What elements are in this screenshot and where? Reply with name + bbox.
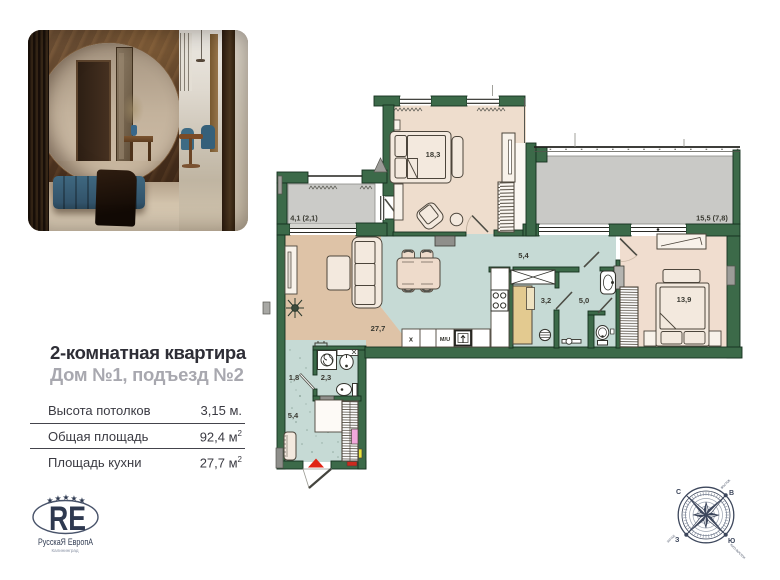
svg-text:3,2: 3,2	[541, 296, 552, 305]
svg-text:М/U: М/U	[440, 337, 450, 343]
svg-text:2,3: 2,3	[321, 373, 332, 382]
svg-text:18,3: 18,3	[426, 150, 441, 159]
svg-text:27,7: 27,7	[371, 324, 386, 333]
svg-text:1,8: 1,8	[289, 373, 300, 382]
svg-text:5,4: 5,4	[518, 251, 529, 260]
svg-text:13,9: 13,9	[677, 295, 692, 304]
svg-text:15,5 (7,8): 15,5 (7,8)	[696, 214, 728, 223]
svg-text:5,4: 5,4	[288, 411, 299, 420]
svg-text:5,0: 5,0	[579, 296, 590, 305]
svg-text:4,1 (2,1): 4,1 (2,1)	[290, 214, 318, 223]
